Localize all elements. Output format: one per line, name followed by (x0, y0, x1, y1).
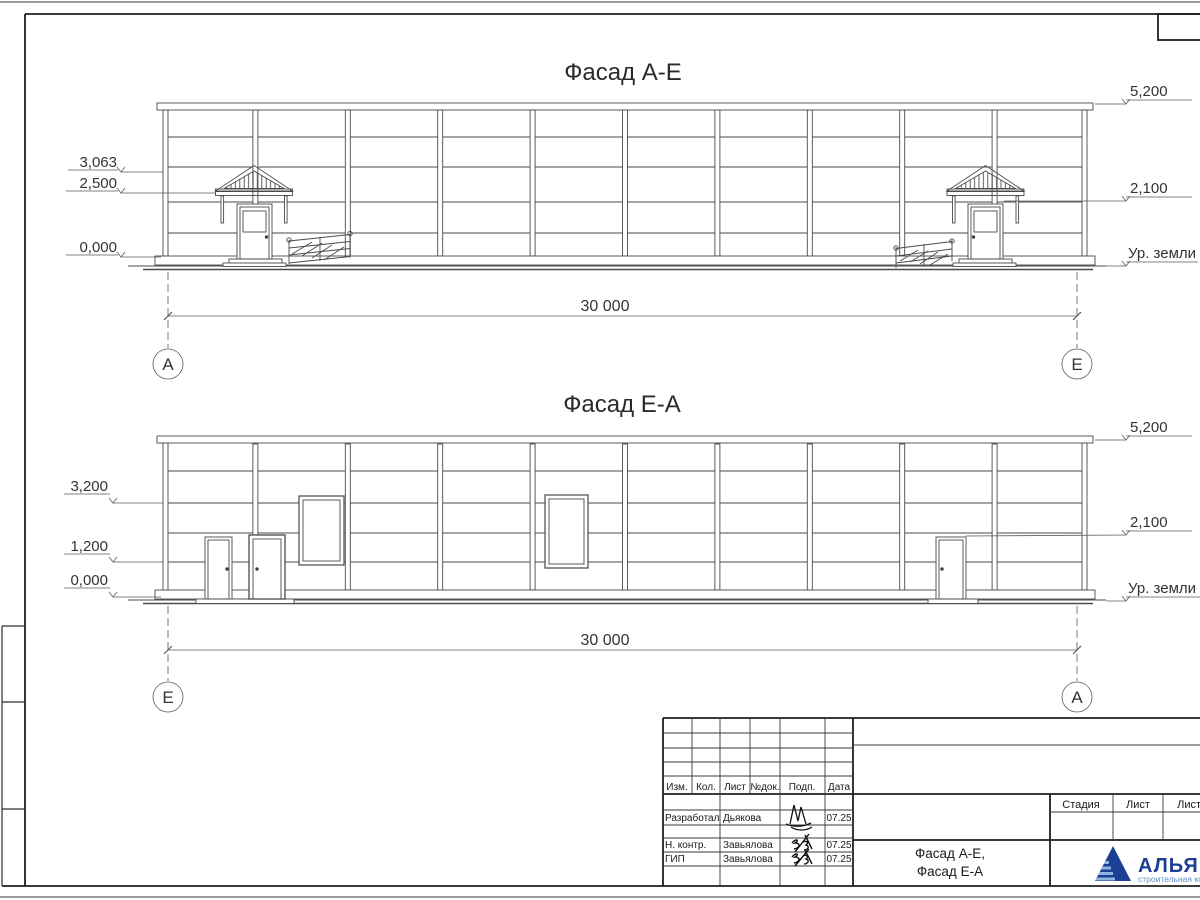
entrance-left (216, 166, 293, 267)
door-handle (972, 236, 975, 239)
logo-subtitle: строительная компания (1138, 874, 1200, 884)
level-zero: 0,000 (70, 572, 108, 589)
facade-ea-span-dim (153, 606, 1092, 712)
facade-ae-title: Фасад А-Е (564, 59, 682, 86)
facade-ea-title: Фасад Е-А (563, 391, 681, 418)
drawing-canvas: Фасад А-Е (0, 0, 1200, 900)
tb-date-gip: 07.25 (826, 854, 851, 865)
tb-name-developer: Дьякова (723, 813, 762, 824)
tb-col-data: Дата (828, 782, 851, 793)
door-left (237, 204, 272, 259)
window-2 (545, 495, 588, 568)
tb-sheet-name-line2: Фасад Е-А (917, 864, 983, 879)
canopy-strut (221, 196, 224, 223)
drawing-frame (2, 14, 1200, 886)
door-3 (936, 537, 966, 599)
door-step (928, 599, 978, 604)
threshold (229, 259, 282, 263)
tb-name-ncontr: Завьялова (723, 840, 773, 851)
facade-ea-drawing: Фасад Е-А (64, 391, 1200, 712)
tb-stage: Стадия (1062, 799, 1100, 811)
tb-col-list: Лист (724, 782, 746, 793)
axis-label-right: Е (1071, 355, 1082, 374)
tb-col-ndoc: №док. (750, 782, 779, 793)
ground-level-label: Ур. земли (1128, 580, 1196, 597)
axis-label-left: Е (162, 688, 173, 707)
facade-ea-openings (196, 495, 978, 604)
drawing-sheet: Фасад А-Е (0, 0, 1200, 900)
canopy-strut (953, 196, 956, 223)
tb-date-developer: 07.25 (826, 813, 851, 824)
level-door: 2,100 (1130, 514, 1168, 531)
ground-level-label: Ур. земли (1128, 245, 1196, 262)
window-1 (299, 496, 344, 565)
tb-col-kol: Кол. (696, 782, 716, 793)
tb-col-izm: Изм. (666, 782, 687, 793)
axis-label-left: А (162, 355, 174, 374)
canopy-strut (1016, 196, 1019, 223)
logo-pyramid-icon (1095, 846, 1131, 881)
company-logo: АЛЬЯНС строительная компания (1094, 846, 1200, 884)
tb-role-ncontr: Н. контр. (665, 840, 706, 851)
span-dimension: 30 000 (581, 298, 630, 315)
signature-developer (786, 805, 812, 830)
level-mid: 3,200 (70, 478, 108, 495)
level-canopy: 2,500 (79, 175, 117, 192)
tb-sheet: Лист (1126, 799, 1150, 811)
level-low: 1,200 (70, 538, 108, 555)
level-zero: 0,000 (79, 239, 117, 256)
tb-sheets-total: Листов (1177, 799, 1200, 811)
level-door: 2,100 (1130, 180, 1168, 197)
sheet-frame (0, 2, 1200, 897)
tb-sheet-name-line1: Фасад А-Е, (915, 846, 985, 861)
tb-name-gip: Завьялова (723, 854, 773, 865)
tb-role-gip: ГИП (665, 854, 685, 865)
signatures (786, 805, 812, 866)
entrance-right (947, 166, 1024, 267)
axis-label-right: А (1071, 688, 1083, 707)
door-step (196, 599, 294, 604)
level-top: 5,200 (1130, 83, 1168, 100)
facade-ae-span-dim (153, 272, 1092, 379)
door-handle (941, 568, 944, 571)
facade-ae-levels-right (1004, 99, 1198, 266)
door-handle (226, 568, 229, 571)
span-dimension: 30 000 (581, 632, 630, 649)
tb-date-ncontr: 07.25 (826, 840, 851, 851)
facade-ae-drawing: Фасад А-Е (66, 59, 1198, 379)
threshold (959, 259, 1012, 263)
door-handle (265, 236, 268, 239)
door-right (968, 204, 1003, 259)
tb-col-podp: Подп. (789, 782, 816, 793)
canopy-strut (285, 196, 288, 223)
title-block: Изм. Кол. Лист №док. Подп. Дата Разработ… (663, 718, 1200, 886)
door-handle (256, 568, 259, 571)
level-top: 5,200 (1130, 419, 1168, 436)
door-2 (249, 535, 285, 599)
frame-corner-box (1158, 14, 1200, 40)
frame-left-column (2, 626, 25, 886)
level-apex: 3,063 (79, 154, 117, 171)
tb-role-developer: Разработал (665, 812, 720, 824)
